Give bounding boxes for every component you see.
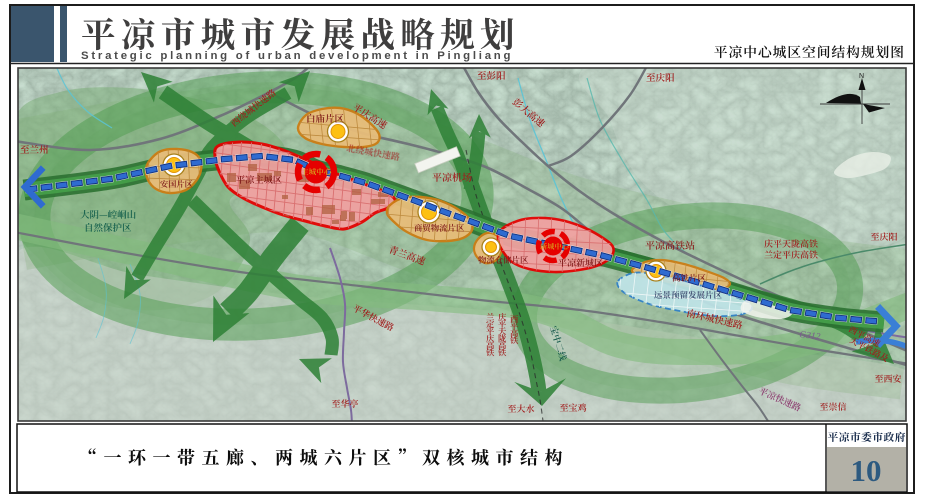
svg-text:10: 10 [851,453,882,488]
svg-text:N: N [859,73,864,80]
svg-text:Strategic planning of urban de: Strategic planning of urban development … [81,50,513,62]
